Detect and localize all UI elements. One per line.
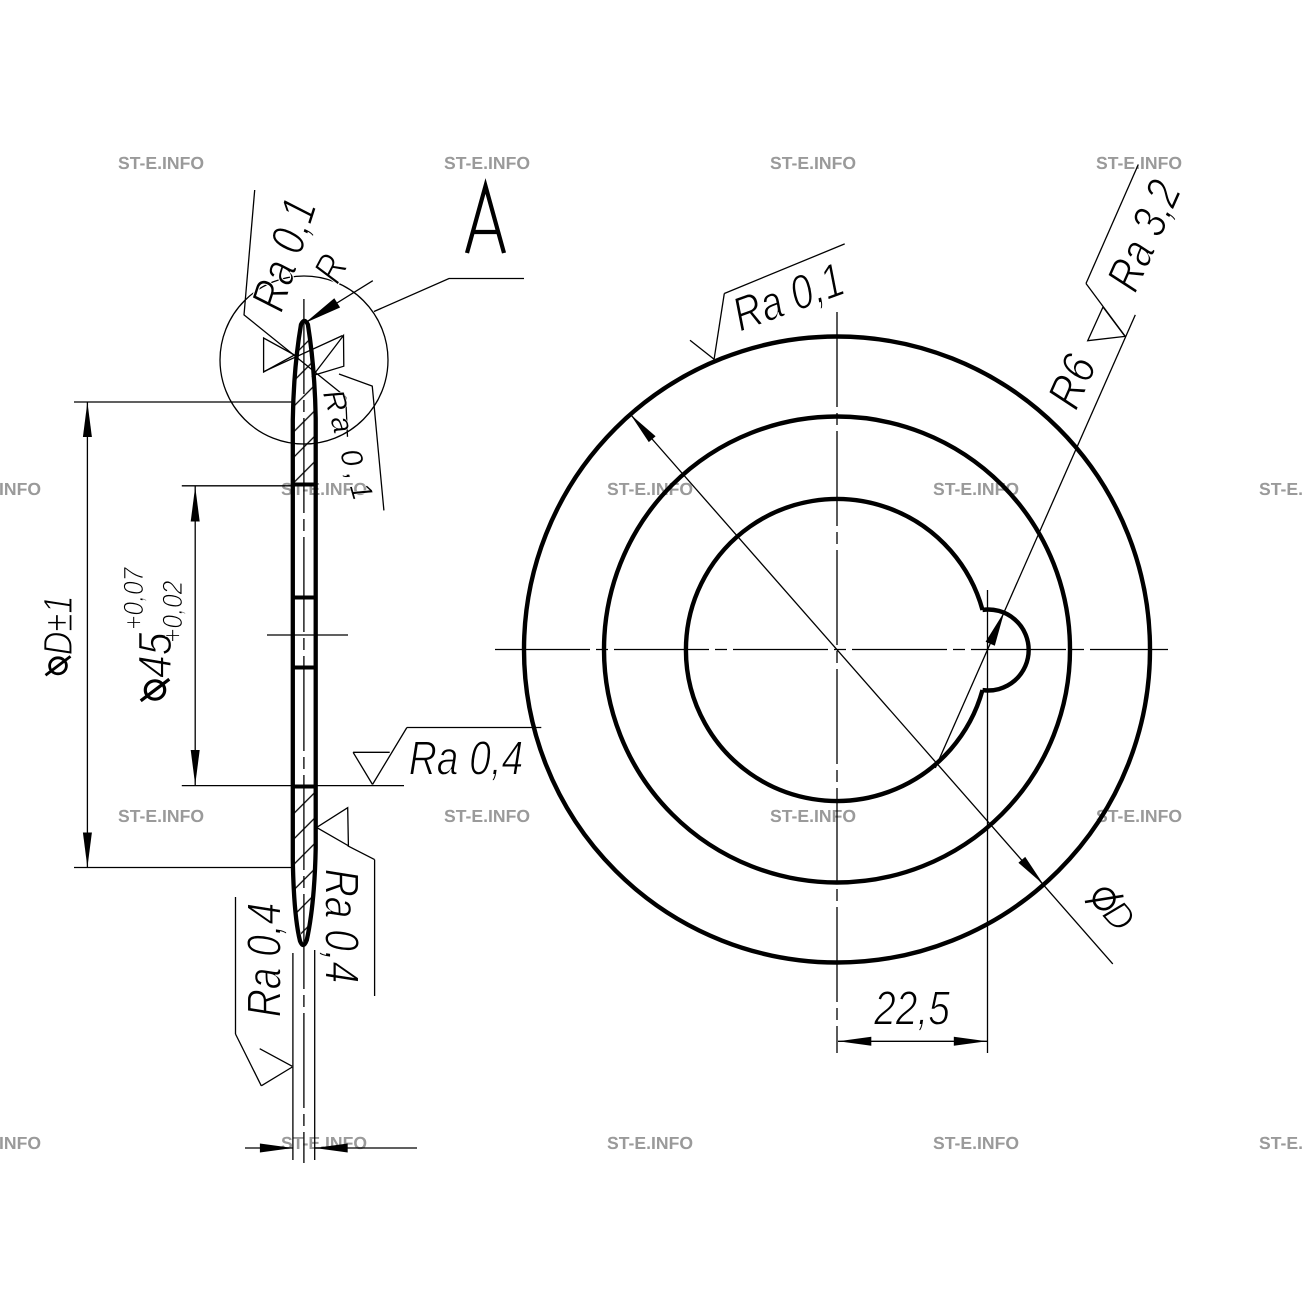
svg-text:22,5: 22,5 (873, 982, 950, 1035)
svg-text:ST-E.INFO: ST-E.INFO (933, 1133, 1019, 1153)
svg-text:Ra 3,2: Ra 3,2 (1097, 173, 1192, 299)
svg-text:Ra 0,4: Ra 0,4 (409, 732, 524, 785)
svg-text:ST-E.INFO: ST-E.INFO (770, 153, 856, 173)
svg-text:Ra 0,4: Ra 0,4 (238, 903, 291, 1018)
svg-text:ST-E.INFO: ST-E.INFO (770, 806, 856, 826)
svg-text:D±1: D±1 (35, 595, 81, 655)
svg-text:ST-E.INFO: ST-E.INFO (1096, 806, 1182, 826)
svg-text:ST-E.INFO: ST-E.INFO (1259, 1133, 1302, 1153)
svg-text:+0,07: +0,07 (118, 566, 149, 630)
svg-text:ST-E.INFO: ST-E.INFO (444, 153, 530, 173)
svg-text:ST-E.INFO: ST-E.INFO (1259, 479, 1302, 499)
svg-text:ST-E.INFO: ST-E.INFO (0, 479, 41, 499)
svg-text:ST-E.INFO: ST-E.INFO (1096, 153, 1182, 173)
svg-text:R6: R6 (1038, 347, 1108, 416)
svg-text:Ra 0,4: Ra 0,4 (315, 869, 368, 984)
svg-text:ST-E.INFO: ST-E.INFO (444, 806, 530, 826)
svg-text:ST-E.INFO: ST-E.INFO (118, 806, 204, 826)
svg-text:ST-E.INFO: ST-E.INFO (118, 153, 204, 173)
svg-text:ST-E.INFO: ST-E.INFO (607, 1133, 693, 1153)
svg-text:ST-E.INFO: ST-E.INFO (607, 479, 693, 499)
svg-text:ST-E.INFO: ST-E.INFO (0, 1133, 41, 1153)
svg-text:ST-E.INFO: ST-E.INFO (281, 1133, 367, 1153)
svg-text:+0,02: +0,02 (157, 580, 188, 643)
